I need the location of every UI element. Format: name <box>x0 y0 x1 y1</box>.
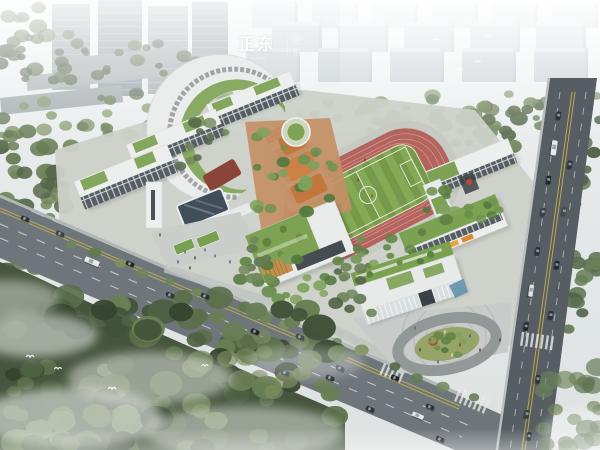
fog-overlay-bottom <box>0 428 600 450</box>
entrance-gate-tower <box>146 182 162 228</box>
watermark-vertical-text: 视觉 <box>287 36 300 58</box>
aerial-rendering: 正东 EST Vision 视觉 <box>0 0 600 450</box>
watermark: 正东 EST Vision 视觉 <box>238 36 300 64</box>
scene-canvas <box>0 0 600 450</box>
watermark-tagline: EST Vision <box>238 55 265 61</box>
watermark-brand: 正东 <box>238 36 282 53</box>
